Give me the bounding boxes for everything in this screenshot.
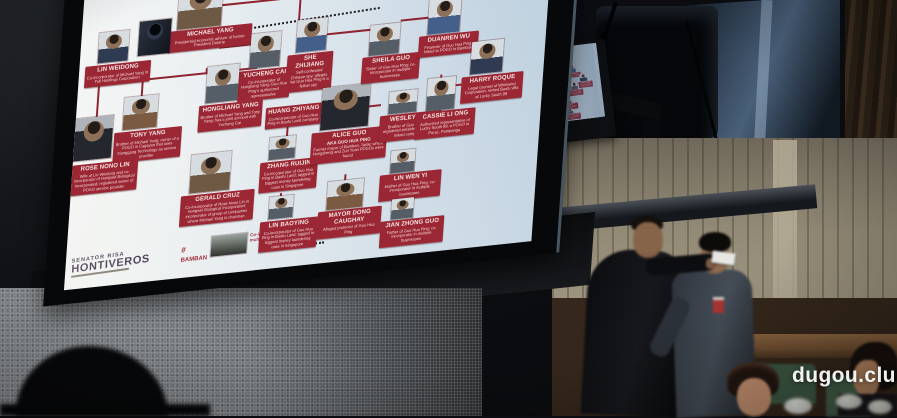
label-rose-nono-lin: ROSE NONO LINWife of Lin Weidong and co-… (71, 159, 139, 197)
footnote-tag-name: # BAMBAN (180, 237, 208, 264)
label-mayor-dong-caughay: MAYOR DONG CAUGHAYAlleged protector of G… (316, 206, 382, 240)
label-hongliang-yang: HONGLIANG YANGBrother of Michael Yang an… (197, 99, 262, 132)
connector-line (222, 0, 300, 6)
foreground-silhouette-shoulder (0, 404, 210, 416)
photo-hongliang-yang (205, 64, 239, 104)
connector-line (401, 17, 429, 22)
white-cup (868, 400, 892, 414)
label-sheila-guo: SHEILA GUO'Sister' of Guo Hua Ping; co-i… (361, 52, 420, 84)
connector-line (141, 81, 144, 96)
photo-yucheng-cai (249, 31, 281, 69)
connector-line (327, 29, 371, 36)
photo-tony-yang (123, 94, 159, 130)
photo-rose-nono-lin (73, 115, 114, 162)
footnote-photo (210, 233, 247, 257)
label-huang-zhiyang: HUANG ZHIYANGCo-incorporator of Guo Hua … (265, 102, 322, 129)
label-harry-roque: HARRY ROQUELegal counsel of Whirlwind Co… (578, 80, 593, 87)
label-she-zhijiang: SHE ZHIJIANGSelf-confessed Chinese spy; … (285, 51, 333, 93)
label-jian-zhong-guo: JIAN ZHONG GUOFather of Guo Hua Ping; co… (379, 215, 444, 248)
slide-chart: SENATOR RISA HONTIVEROS # BAMBAN Co-inco… (64, 0, 555, 290)
label-yucheng-cai: YUCHENG CAICo-incorporator of Hongliang … (237, 66, 291, 102)
hontiveros-logo: SENATOR RISA HONTIVEROS (71, 248, 150, 278)
watermark: dugou.club (792, 364, 897, 388)
id-badge (713, 297, 724, 313)
connector-line (298, 0, 302, 20)
label-harry-roque: HARRY ROQUELegal counsel of Whirlwind Co… (460, 71, 523, 103)
footnote-name: BAMBAN (180, 255, 207, 264)
hashtag-icon: # (181, 245, 186, 255)
photo-michael-yang (177, 0, 224, 30)
label-alice-guo: ALICE GUOAKA GUO HUA PINGFormer mayor of… (310, 126, 388, 165)
photo-alice-guo (320, 83, 371, 131)
photo-gerald-cruz (189, 151, 231, 194)
seated-woman-face (737, 378, 771, 416)
photo-sheila-guo (369, 23, 401, 57)
photo-zhang-ruijin (269, 135, 296, 160)
label-tony-yang: TONY YANGBrother of Michael Yang; owner … (112, 126, 182, 164)
white-cup (836, 394, 862, 409)
photo-she-zhijiang (296, 17, 328, 53)
photo-duanren-wu (427, 0, 461, 35)
connector-line (96, 85, 100, 117)
photo-lin-baoying (268, 195, 293, 220)
suit-man-head (633, 222, 663, 258)
photo-unidentified-figure (138, 19, 172, 57)
label-gerald-cruz: GERALD CRUZCo-incorporator of Rose Nono … (179, 189, 255, 227)
photo-lin-wen-yi (390, 149, 415, 174)
photo-harry-roque (470, 39, 504, 75)
photo-cassie-li-ong (426, 76, 456, 111)
label-cassie-li-ong: CASSIE LI ONGAuthorized representative o… (569, 89, 583, 96)
connector-line (369, 104, 381, 107)
photo-mayor-dong-caughay (326, 178, 364, 210)
photo-lin-weidong (98, 30, 130, 64)
white-cup (784, 398, 812, 414)
photo-jian-zhong-guo (391, 197, 414, 220)
polo-man-hair (699, 232, 731, 252)
label-cassie-li-ong: CASSIE LI ONGAuthorized representative o… (414, 107, 475, 139)
photo-wesley-guo (388, 89, 417, 114)
